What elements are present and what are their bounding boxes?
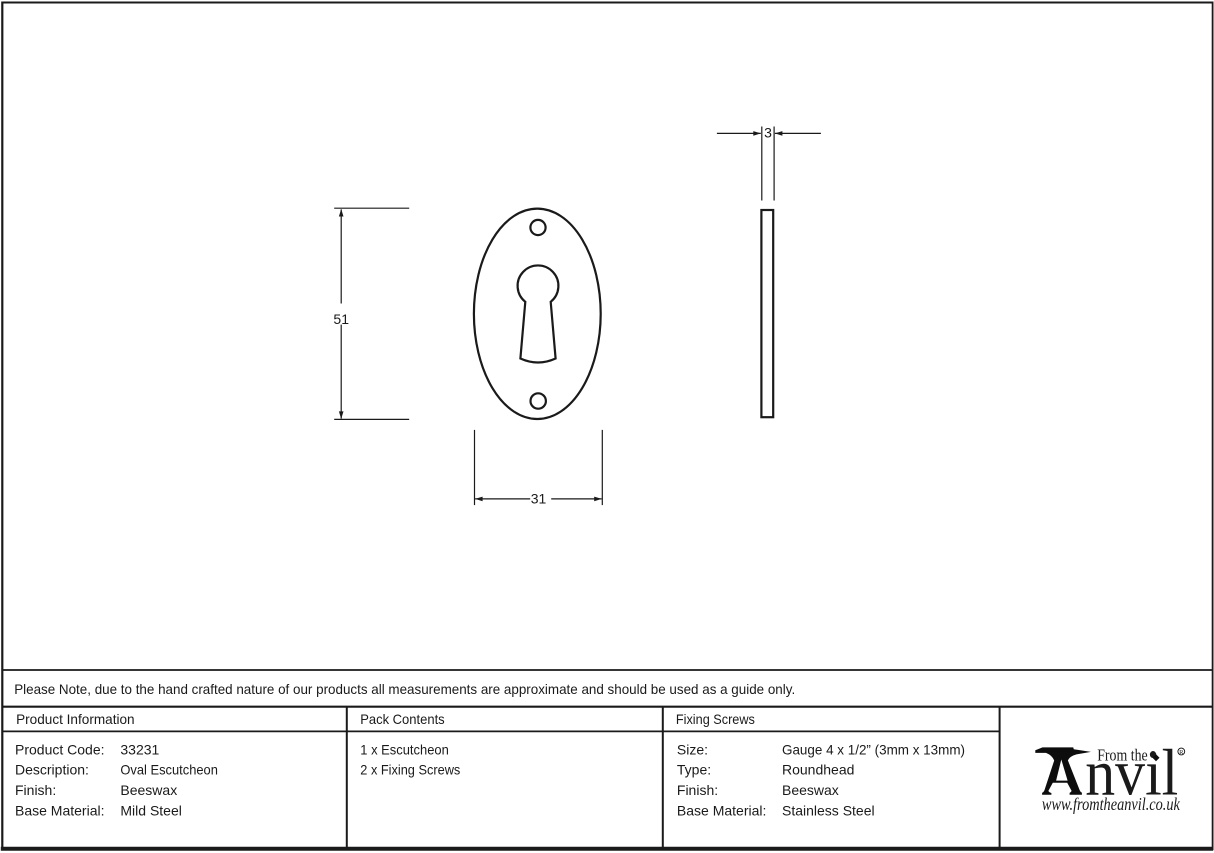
svg-text:51: 51 xyxy=(333,311,349,327)
svg-text:Please Note, due to the hand c: Please Note, due to the hand crafted nat… xyxy=(14,681,795,697)
svg-text:Roundhead: Roundhead xyxy=(782,762,854,778)
svg-text:Description:: Description: xyxy=(15,762,89,778)
svg-text:1 x Escutcheon: 1 x Escutcheon xyxy=(360,741,449,757)
svg-text:31: 31 xyxy=(531,491,547,507)
svg-text:3: 3 xyxy=(764,125,772,141)
svg-text:Base Material:: Base Material: xyxy=(677,803,766,819)
svg-text:Finish:: Finish: xyxy=(15,782,56,798)
svg-text:Product Information: Product Information xyxy=(16,711,135,727)
svg-text:Base Material:: Base Material: xyxy=(15,803,104,819)
svg-text:Type:: Type: xyxy=(677,762,711,778)
svg-text:R: R xyxy=(1179,749,1184,756)
svg-text:Stainless Steel: Stainless Steel xyxy=(782,803,875,819)
svg-text:From the: From the xyxy=(1097,746,1148,765)
svg-text:Gauge 4 x 1/2” (3mm x 13mm): Gauge 4 x 1/2” (3mm x 13mm) xyxy=(782,741,965,757)
svg-text:Size:: Size: xyxy=(677,741,708,757)
svg-text:Pack Contents: Pack Contents xyxy=(360,711,445,727)
svg-text:www.fromtheanvil.co.uk: www.fromtheanvil.co.uk xyxy=(1042,794,1181,814)
svg-text:33231: 33231 xyxy=(120,741,159,757)
svg-text:Beeswax: Beeswax xyxy=(782,782,839,798)
svg-text:Fixing Screws: Fixing Screws xyxy=(676,711,755,727)
svg-text:2 x Fixing Screws: 2 x Fixing Screws xyxy=(360,762,460,778)
svg-text:Mild Steel: Mild Steel xyxy=(120,803,181,819)
svg-text:Oval Escutcheon: Oval Escutcheon xyxy=(120,762,217,778)
svg-text:Beeswax: Beeswax xyxy=(120,782,177,798)
svg-text:Product Code:: Product Code: xyxy=(15,741,105,757)
svg-text:Finish:: Finish: xyxy=(677,782,718,798)
